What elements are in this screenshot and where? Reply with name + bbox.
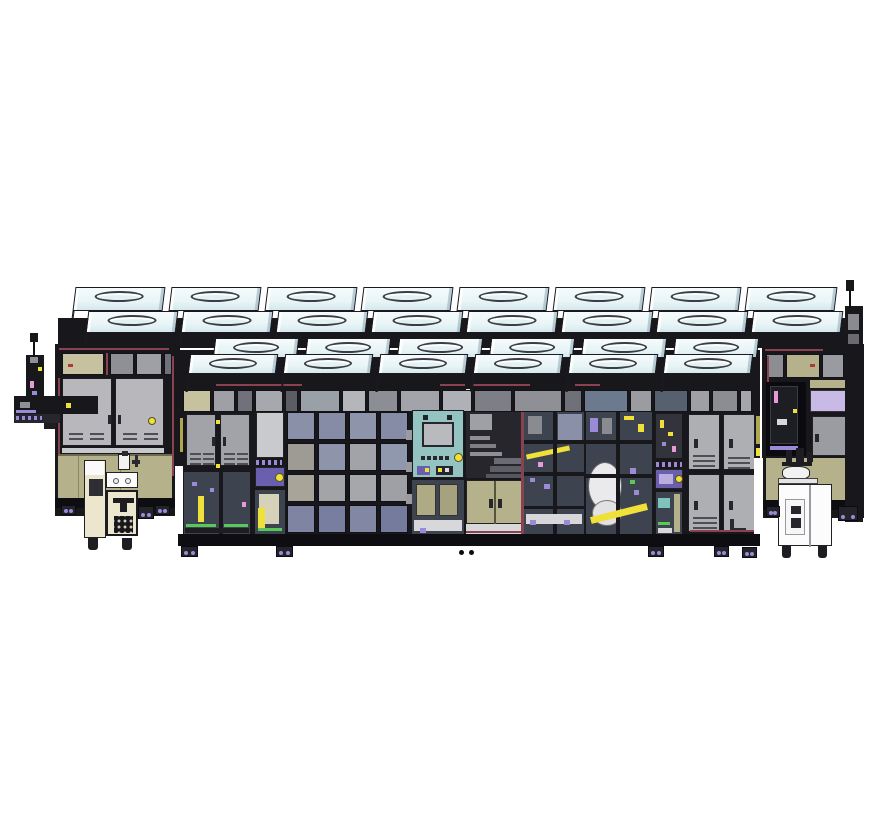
locker-door	[723, 474, 755, 532]
fan-filter-unit	[169, 287, 262, 311]
machinery-detail	[192, 482, 197, 486]
internal-cabinet	[439, 484, 458, 516]
machinery-detail	[185, 528, 249, 533]
door-handle	[815, 434, 819, 442]
glass-pane	[349, 412, 377, 440]
indicator-lamp-yellow	[275, 473, 284, 482]
control-button	[439, 456, 443, 460]
caster-wheel	[122, 538, 132, 550]
antenna-mast	[30, 333, 38, 342]
machinery-detail	[528, 416, 542, 434]
door-vents	[728, 457, 750, 469]
ffu-oval-ring	[478, 291, 529, 302]
door-handle	[108, 415, 111, 424]
cart-slot	[791, 518, 801, 528]
window-strip-panel	[400, 390, 440, 412]
status-ticks	[656, 462, 682, 467]
equipment-line-illustration	[0, 0, 879, 834]
fan-filter-unit	[457, 287, 550, 311]
rack-step	[494, 458, 522, 464]
glass-pane	[287, 412, 315, 440]
accent-line	[765, 349, 823, 351]
rack-shelf	[470, 444, 496, 448]
cart-tabletop	[106, 472, 138, 488]
machinery-detail	[668, 432, 673, 436]
window-strip-panel	[564, 390, 582, 412]
glass-pane-grid	[287, 412, 408, 533]
antenna-mast	[846, 280, 854, 291]
floor-strip	[658, 528, 672, 533]
window-strip-panel	[237, 390, 253, 412]
door-seam	[809, 485, 811, 547]
indicator-lamp-yellow	[675, 475, 683, 483]
ffu-top-face	[745, 287, 838, 311]
rack-step	[486, 474, 522, 478]
machine-foot	[181, 546, 198, 557]
ffu-oval-ring	[574, 291, 625, 302]
door-vents	[69, 433, 83, 443]
mini-indicator-purple	[417, 466, 430, 475]
indicator-lamp-yellow	[425, 468, 429, 472]
ffu-top-face	[553, 287, 646, 311]
window-strip-panel	[442, 390, 472, 412]
glass-pane	[318, 474, 346, 502]
floor-strip	[466, 524, 522, 534]
module-gap	[175, 466, 183, 534]
mullion	[219, 472, 223, 534]
cabinet-door	[186, 414, 216, 466]
frame-panel	[848, 314, 859, 330]
table-knob	[125, 478, 131, 484]
mast-detail	[32, 391, 37, 395]
keypad	[114, 516, 133, 533]
rack-step	[490, 466, 522, 472]
indicator-lamp-yellow	[438, 468, 442, 472]
machinery-detail	[658, 522, 670, 525]
glass-pane	[380, 474, 408, 502]
machinery-detail	[564, 520, 570, 525]
connector-block	[777, 419, 787, 425]
machinery-detail	[186, 524, 216, 527]
accent-line	[216, 384, 302, 386]
ffu-top-face	[457, 287, 550, 311]
top-window-panel	[110, 353, 134, 375]
window-strip-panel	[712, 390, 738, 412]
machinery-detail	[198, 496, 204, 522]
window-strip-panel	[213, 390, 235, 412]
machinery-detail	[544, 484, 550, 489]
control-button	[433, 456, 437, 460]
conveyor-rail	[526, 445, 570, 459]
window-strip-panel	[255, 390, 283, 412]
accent-line	[575, 384, 600, 386]
top-window-panel	[822, 354, 844, 378]
locker-door	[688, 414, 720, 470]
machinery-detail	[420, 528, 426, 533]
machinery-detail	[242, 502, 246, 507]
machine-foot	[648, 546, 664, 557]
led-strip	[756, 448, 760, 456]
blank-panel	[256, 412, 284, 458]
led-strip	[756, 416, 760, 444]
door-handle	[729, 501, 733, 510]
cart-knob	[796, 448, 804, 462]
door-seam	[494, 481, 496, 525]
module-gap	[754, 458, 763, 534]
door-handle	[118, 415, 121, 424]
interlock-panel	[655, 469, 683, 489]
indicator-lamp-yellow	[148, 417, 156, 425]
panel-knob	[447, 415, 452, 420]
indicator-lamp-yellow	[38, 367, 42, 371]
indicator-lamp-white	[445, 468, 449, 472]
door-vents	[90, 433, 104, 443]
fan-filter-unit	[361, 287, 454, 311]
machinery-detail	[590, 418, 598, 432]
glass-bay-chamber	[586, 412, 652, 534]
interlock-panel	[255, 467, 285, 487]
door-vents	[190, 453, 201, 465]
fan-filter-unit	[553, 287, 646, 311]
mast-detail	[30, 381, 34, 388]
window-strip-panel	[342, 390, 366, 412]
door-vents	[693, 517, 717, 529]
cart-knob	[807, 452, 813, 462]
cart-slot	[791, 506, 801, 514]
glass-bay-machinery	[255, 490, 285, 534]
top-window-panel	[164, 353, 172, 375]
antenna-stem	[33, 342, 35, 357]
cart-body	[778, 484, 832, 546]
panel-knob	[423, 415, 428, 420]
canister	[118, 454, 130, 470]
upper-window-strip	[178, 390, 760, 412]
door-vents	[144, 433, 158, 443]
machinery-detail	[658, 498, 670, 508]
ffu-oval-ring	[382, 291, 433, 302]
interlock-screen	[659, 474, 673, 484]
ffu-oval-ring	[286, 291, 337, 302]
window-strip-panel	[183, 390, 211, 412]
door-handle	[212, 437, 215, 446]
glass-bay-machinery	[524, 412, 584, 534]
rack-shelf	[470, 436, 490, 440]
accent-line	[440, 384, 465, 386]
cart-inset-panel	[785, 499, 805, 535]
front-enclosure-section	[178, 374, 760, 546]
ffu-oval-ring	[94, 291, 145, 302]
floor-marker-dot	[469, 550, 474, 555]
mast-detail	[30, 357, 38, 363]
cart-tower	[84, 460, 106, 538]
window-strip-panel	[368, 390, 398, 412]
led-strip	[180, 418, 183, 452]
locker-door	[723, 414, 755, 470]
machinery-detail	[258, 528, 282, 531]
rack-panel	[470, 414, 492, 430]
window-strip-panel	[740, 390, 752, 412]
control-panel	[412, 410, 464, 478]
machinery-detail	[672, 446, 676, 452]
door-handle	[694, 501, 698, 510]
door-vents	[237, 453, 248, 465]
glass-bay-machinery	[412, 480, 464, 534]
table-knob	[113, 478, 119, 484]
machinery-detail	[210, 488, 214, 492]
window-strip-panel	[514, 390, 562, 412]
door-vents	[693, 455, 715, 467]
keypad-tbar	[120, 503, 127, 512]
ffu-top-face	[73, 287, 166, 311]
pedestal-cart	[82, 450, 144, 552]
glass-pane	[380, 443, 408, 471]
accent-line	[473, 384, 530, 386]
machinery-detail	[662, 442, 666, 446]
machine-foot	[276, 546, 293, 557]
door-vents	[224, 453, 235, 465]
bottom-rail	[178, 534, 760, 546]
machinery-detail	[630, 480, 635, 484]
glass-pane	[318, 412, 346, 440]
antenna-stem	[849, 291, 851, 308]
locker-door	[688, 474, 720, 532]
glass-pane	[349, 505, 377, 533]
cabinet-door	[220, 414, 250, 466]
internal-cabinet	[416, 484, 436, 516]
top-window-panel	[62, 353, 104, 375]
control-button	[421, 456, 425, 460]
robot-underbar	[14, 414, 60, 423]
machinery-detail	[624, 416, 634, 420]
glass-bay-machinery	[184, 472, 250, 534]
door-vents	[123, 433, 137, 443]
door-handle	[694, 439, 698, 448]
glass-pane	[349, 474, 377, 502]
rack-shelf	[470, 452, 502, 456]
machinery-detail	[660, 420, 664, 428]
glass-pane	[380, 412, 408, 440]
caster-wheel	[818, 546, 827, 558]
control-button	[427, 456, 431, 460]
machinery-detail	[530, 520, 536, 525]
mini-indicator-dark	[436, 466, 453, 475]
ffu-top-face	[649, 287, 742, 311]
status-slot-pink	[774, 391, 778, 403]
accent-line	[690, 530, 754, 532]
fan-filter-unit	[73, 287, 166, 311]
ffu-oval-ring	[766, 291, 817, 302]
machinery-pane	[656, 414, 682, 458]
mullion	[586, 474, 652, 478]
arm-detail	[16, 410, 36, 413]
top-window-panel	[136, 353, 162, 375]
accent-line	[172, 356, 174, 476]
machine-foot	[138, 506, 154, 519]
window-strip-panel	[630, 390, 652, 412]
arm-detail	[20, 402, 30, 408]
door-handle	[729, 439, 733, 448]
panel-seam	[78, 456, 79, 498]
fan-filter-unit	[649, 287, 742, 311]
floor-marker-dot	[459, 550, 464, 555]
tower-cap	[85, 461, 104, 475]
door-vents	[203, 453, 214, 465]
glass-pane	[318, 505, 346, 533]
mullion	[586, 440, 652, 444]
fixture-bracket	[135, 455, 138, 467]
glass-pane	[287, 443, 315, 471]
window-strip-panel	[474, 390, 512, 412]
cabinet-door	[115, 378, 164, 446]
robot-foot	[44, 423, 56, 429]
caster-wheel	[88, 538, 98, 550]
machinery-detail	[538, 462, 543, 467]
tower-inset	[89, 479, 103, 496]
status-mark-red	[68, 364, 73, 367]
door-handle	[223, 437, 226, 446]
indicator-lamp-yellow	[66, 403, 71, 408]
machinery-detail	[224, 524, 248, 527]
glass-pane	[318, 443, 346, 471]
window-strip-panel	[654, 390, 688, 412]
status-ticks	[16, 416, 42, 420]
machinery-detail	[530, 478, 535, 482]
control-screen	[422, 422, 454, 447]
glass-pane	[287, 505, 315, 533]
window-strip-panel	[690, 390, 710, 412]
ffu-oval-ring	[670, 291, 721, 302]
door-handle	[498, 499, 502, 508]
machinery-detail	[638, 424, 644, 432]
ffu-top-face	[265, 287, 358, 311]
ffu-top-face	[169, 287, 262, 311]
status-mark-red	[810, 364, 815, 367]
machinery-panel-blue	[558, 414, 582, 440]
equipment-rack	[466, 412, 522, 478]
window-strip-panel	[584, 390, 628, 412]
window-strip-panel	[300, 390, 340, 412]
glass-pane	[349, 443, 377, 471]
control-button	[445, 456, 449, 460]
machinery-detail	[602, 418, 612, 434]
keypad-panel	[106, 490, 138, 536]
double-doors-olive	[466, 480, 522, 524]
machinery-detail	[674, 494, 680, 532]
fan-filter-unit	[265, 287, 358, 311]
machinery-detail	[634, 490, 639, 495]
indicator-lamp-yellow	[793, 409, 797, 413]
status-ticks	[256, 460, 282, 465]
internal-cabinet	[770, 386, 798, 444]
machinery-detail	[258, 508, 265, 530]
machine-foot	[742, 547, 757, 558]
accent-line	[106, 353, 108, 375]
fan-filter-unit	[745, 287, 838, 311]
ffu-oval-ring	[190, 291, 241, 302]
machine-foot	[714, 546, 729, 557]
indicator-lamp-yellow	[216, 420, 220, 424]
robot-mast	[26, 355, 44, 401]
indicator-lamp-yellow	[454, 453, 463, 462]
glass-pane	[287, 474, 315, 502]
door-handle	[489, 499, 493, 508]
accent-line	[59, 348, 169, 350]
glass-pane	[380, 505, 408, 533]
canister-cap	[122, 451, 128, 456]
service-opening	[766, 382, 806, 456]
indicator-lamp-yellow	[216, 464, 220, 468]
pump-cart	[776, 446, 834, 552]
mullion	[524, 472, 584, 476]
mullion	[524, 440, 584, 444]
mullion	[524, 506, 584, 509]
cart-knob	[786, 450, 792, 462]
accent-line	[466, 531, 522, 533]
glass-bay-machinery	[656, 492, 682, 534]
window-strip-panel	[285, 390, 298, 412]
ffu-top-face	[361, 287, 454, 311]
right-end-frame	[845, 306, 863, 522]
caster-wheel	[782, 546, 791, 558]
robot-arm	[14, 396, 98, 414]
frame-panel	[848, 334, 859, 344]
